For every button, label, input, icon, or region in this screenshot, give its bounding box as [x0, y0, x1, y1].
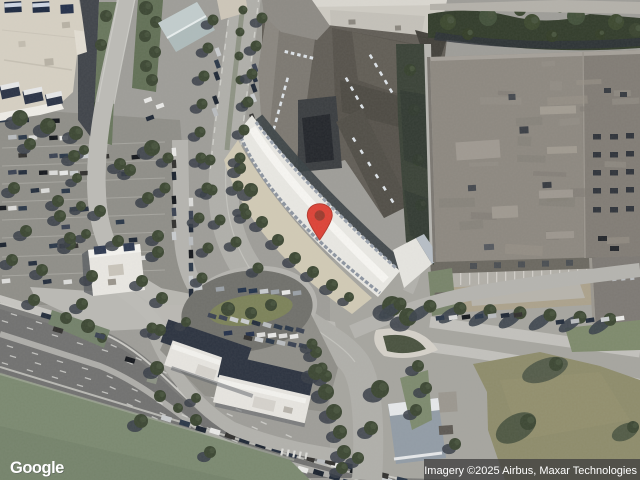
svg-text:Imagery ©2025 Airbus, Maxar Te: Imagery ©2025 Airbus, Maxar Technologies — [424, 465, 637, 477]
svg-text:Google: Google — [10, 459, 64, 477]
